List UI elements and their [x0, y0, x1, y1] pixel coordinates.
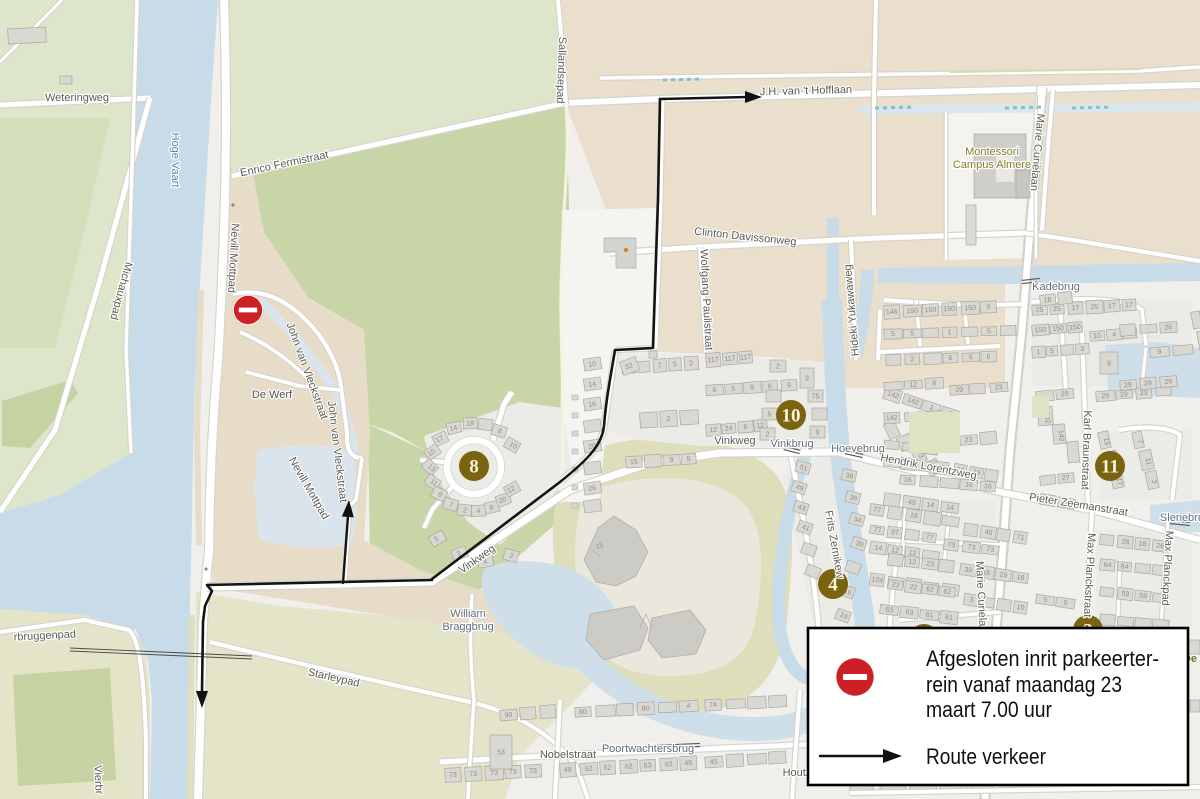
svg-text:Afgesloten inrit parkeerter-: Afgesloten inrit parkeerter- — [926, 646, 1159, 671]
svg-text:Sallandsepad: Sallandsepad — [554, 37, 568, 104]
svg-text:3: 3 — [1080, 346, 1084, 353]
svg-text:14: 14 — [926, 502, 935, 510]
svg-text:10: 10 — [1016, 604, 1025, 612]
svg-text:De Werf: De Werf — [252, 389, 293, 401]
svg-text:64: 64 — [1103, 562, 1112, 570]
svg-text:29: 29 — [999, 571, 1008, 579]
svg-text:Route verkeer: Route verkeer — [926, 744, 1046, 769]
svg-text:63: 63 — [665, 761, 673, 768]
svg-text:45: 45 — [984, 529, 993, 537]
svg-text:73: 73 — [529, 768, 537, 775]
svg-text:87: 87 — [891, 529, 900, 537]
svg-text:29: 29 — [1164, 378, 1172, 386]
svg-text:15: 15 — [630, 459, 638, 466]
svg-text:117: 117 — [724, 355, 736, 363]
svg-text:62: 62 — [926, 586, 935, 594]
svg-text:Hoge Vaart: Hoge Vaart — [169, 133, 181, 188]
svg-text:62: 62 — [943, 588, 952, 596]
svg-text:29: 29 — [1144, 380, 1152, 388]
svg-text:Vinkweg: Vinkweg — [714, 435, 755, 447]
svg-text:14: 14 — [874, 544, 883, 552]
svg-text:8: 8 — [469, 457, 479, 478]
svg-text:rein vanaf maandag 23: rein vanaf maandag 23 — [926, 672, 1122, 697]
svg-text:73: 73 — [986, 546, 995, 554]
svg-text:73: 73 — [509, 769, 517, 776]
svg-text:5: 5 — [768, 411, 772, 418]
svg-text:77: 77 — [925, 534, 934, 542]
svg-text:77: 77 — [873, 506, 882, 514]
svg-text:2: 2 — [463, 507, 468, 514]
svg-text:Poortwachtersbrug: Poortwachtersbrug — [602, 743, 694, 755]
svg-text:142: 142 — [886, 415, 898, 423]
svg-text:12: 12 — [908, 559, 917, 567]
svg-text:14: 14 — [946, 504, 955, 512]
svg-text:53: 53 — [497, 749, 505, 756]
svg-text:1: 1 — [948, 329, 952, 336]
svg-text:6: 6 — [948, 355, 952, 362]
svg-text:10: 10 — [588, 361, 597, 369]
svg-text:49: 49 — [564, 767, 572, 774]
svg-text:16: 16 — [588, 401, 597, 409]
svg-text:49: 49 — [684, 760, 692, 767]
svg-text:6: 6 — [969, 354, 973, 361]
svg-text:2: 2 — [776, 363, 780, 370]
svg-text:62: 62 — [585, 766, 593, 773]
svg-text:64: 64 — [1120, 563, 1129, 571]
svg-text:9: 9 — [1107, 360, 1111, 367]
svg-text:150: 150 — [1069, 324, 1081, 332]
svg-text:26: 26 — [1164, 324, 1172, 332]
svg-text:14: 14 — [588, 381, 597, 389]
svg-text:5: 5 — [687, 456, 691, 463]
svg-text:61: 61 — [925, 612, 934, 620]
svg-text:59: 59 — [1139, 593, 1148, 601]
svg-text:74: 74 — [709, 702, 717, 709]
svg-text:63: 63 — [905, 609, 914, 617]
svg-text:39: 39 — [964, 566, 973, 574]
svg-text:17: 17 — [1071, 305, 1079, 312]
svg-text:11: 11 — [1144, 457, 1152, 466]
svg-text:73: 73 — [490, 770, 498, 777]
svg-text:2: 2 — [910, 356, 914, 363]
svg-text:Braggbrug: Braggbrug — [442, 621, 493, 633]
svg-text:William: William — [450, 608, 485, 620]
svg-text:Montessori: Montessori — [965, 146, 1019, 158]
svg-text:63: 63 — [644, 762, 652, 769]
svg-text:Vinkbrug: Vinkbrug — [770, 438, 813, 450]
svg-text:150: 150 — [924, 307, 936, 315]
svg-text:18: 18 — [466, 420, 474, 427]
svg-text:1: 1 — [1036, 349, 1040, 356]
svg-text:2: 2 — [689, 360, 694, 367]
svg-text:22: 22 — [909, 584, 918, 592]
svg-text:Weteringweg: Weteringweg — [45, 92, 109, 104]
svg-text:45: 45 — [710, 759, 718, 767]
svg-text:6: 6 — [712, 387, 716, 394]
svg-text:9: 9 — [816, 429, 820, 436]
svg-text:117: 117 — [740, 354, 752, 362]
svg-text:Nobelstraat: Nobelstraat — [540, 749, 596, 761]
svg-text:150: 150 — [964, 305, 976, 313]
svg-text:150: 150 — [1034, 327, 1046, 335]
svg-text:62: 62 — [604, 764, 612, 771]
svg-text:16: 16 — [909, 512, 918, 520]
svg-text:25: 25 — [1090, 304, 1098, 311]
svg-text:9: 9 — [669, 457, 673, 464]
svg-text:4: 4 — [686, 703, 690, 710]
svg-text:73: 73 — [449, 772, 457, 779]
svg-text:61: 61 — [945, 614, 954, 622]
svg-text:17: 17 — [1125, 302, 1133, 309]
svg-text:5: 5 — [731, 386, 735, 393]
svg-text:6: 6 — [768, 383, 772, 390]
svg-text:5: 5 — [1050, 348, 1054, 355]
svg-text:29: 29 — [1124, 382, 1132, 390]
svg-text:29: 29 — [955, 387, 963, 395]
svg-text:73: 73 — [947, 542, 956, 550]
svg-text:25: 25 — [1053, 306, 1061, 313]
svg-text:29: 29 — [1060, 391, 1069, 399]
svg-text:23: 23 — [1140, 390, 1148, 398]
svg-text:75: 75 — [812, 393, 820, 400]
svg-text:117: 117 — [707, 357, 719, 365]
svg-text:29: 29 — [1101, 393, 1109, 401]
svg-text:12: 12 — [909, 381, 917, 388]
svg-text:150: 150 — [943, 306, 955, 314]
svg-text:8: 8 — [743, 424, 748, 431]
svg-text:73: 73 — [469, 771, 477, 778]
svg-text:80: 80 — [579, 709, 587, 716]
svg-text:5: 5 — [910, 330, 914, 337]
svg-text:J.H. van 't Hofflaan: J.H. van 't Hofflaan — [760, 84, 853, 98]
svg-text:2: 2 — [766, 431, 770, 438]
svg-text:2: 2 — [666, 416, 670, 423]
svg-text:45: 45 — [908, 499, 917, 507]
svg-text:23: 23 — [926, 561, 935, 569]
svg-text:27: 27 — [1062, 475, 1071, 483]
svg-text:80: 80 — [642, 705, 650, 712]
svg-text:142: 142 — [1057, 430, 1065, 442]
svg-text:62: 62 — [625, 763, 633, 770]
svg-text:16: 16 — [965, 482, 973, 490]
svg-text:5: 5 — [891, 331, 895, 338]
svg-text:Kadebrug: Kadebrug — [1032, 281, 1080, 293]
svg-text:18: 18 — [1138, 541, 1147, 549]
svg-text:16: 16 — [904, 477, 912, 485]
svg-text:146: 146 — [886, 309, 898, 317]
svg-text:11: 11 — [1101, 457, 1119, 478]
svg-text:29: 29 — [1120, 391, 1128, 399]
svg-text:9: 9 — [986, 304, 990, 311]
svg-text:150: 150 — [906, 308, 918, 316]
svg-text:59: 59 — [1121, 591, 1130, 599]
svg-text:4: 4 — [476, 508, 480, 515]
svg-text:12: 12 — [709, 427, 718, 435]
svg-text:8: 8 — [932, 380, 936, 387]
svg-text:26: 26 — [1121, 539, 1130, 547]
svg-text:Vierbr: Vierbr — [91, 765, 105, 795]
svg-text:77: 77 — [873, 526, 882, 534]
svg-text:24: 24 — [725, 425, 734, 433]
svg-text:90: 90 — [504, 712, 512, 720]
svg-text:Hoevebrug: Hoevebrug — [831, 443, 885, 455]
svg-text:23: 23 — [995, 384, 1003, 392]
svg-text:7: 7 — [658, 362, 663, 369]
svg-text:23: 23 — [964, 437, 973, 445]
svg-text:18: 18 — [1016, 574, 1025, 582]
svg-text:5: 5 — [987, 328, 991, 335]
svg-text:150: 150 — [1052, 325, 1064, 333]
svg-text:9: 9 — [787, 382, 791, 389]
svg-text:63: 63 — [885, 607, 894, 615]
svg-text:maart 7.00 uur: maart 7.00 uur — [926, 697, 1052, 722]
svg-text:22: 22 — [891, 582, 900, 590]
svg-text:18: 18 — [1043, 297, 1052, 305]
svg-text:9: 9 — [1157, 349, 1162, 356]
svg-text:5: 5 — [673, 361, 678, 368]
svg-text:9: 9 — [805, 375, 809, 382]
svg-text:26: 26 — [588, 485, 597, 493]
svg-text:Campus Almere: Campus Almere — [953, 159, 1031, 171]
svg-text:9: 9 — [750, 384, 754, 391]
svg-text:71: 71 — [1016, 534, 1025, 542]
svg-text:4: 4 — [1112, 332, 1117, 339]
svg-text:16: 16 — [984, 483, 992, 491]
svg-text:25: 25 — [1036, 307, 1044, 314]
svg-text:Slenebrug: Slenebrug — [1160, 512, 1200, 524]
svg-text:17: 17 — [1108, 303, 1116, 310]
svg-text:73: 73 — [967, 544, 976, 552]
svg-text:10: 10 — [1093, 333, 1101, 341]
svg-text:10: 10 — [782, 406, 801, 427]
svg-text:6: 6 — [987, 354, 991, 361]
